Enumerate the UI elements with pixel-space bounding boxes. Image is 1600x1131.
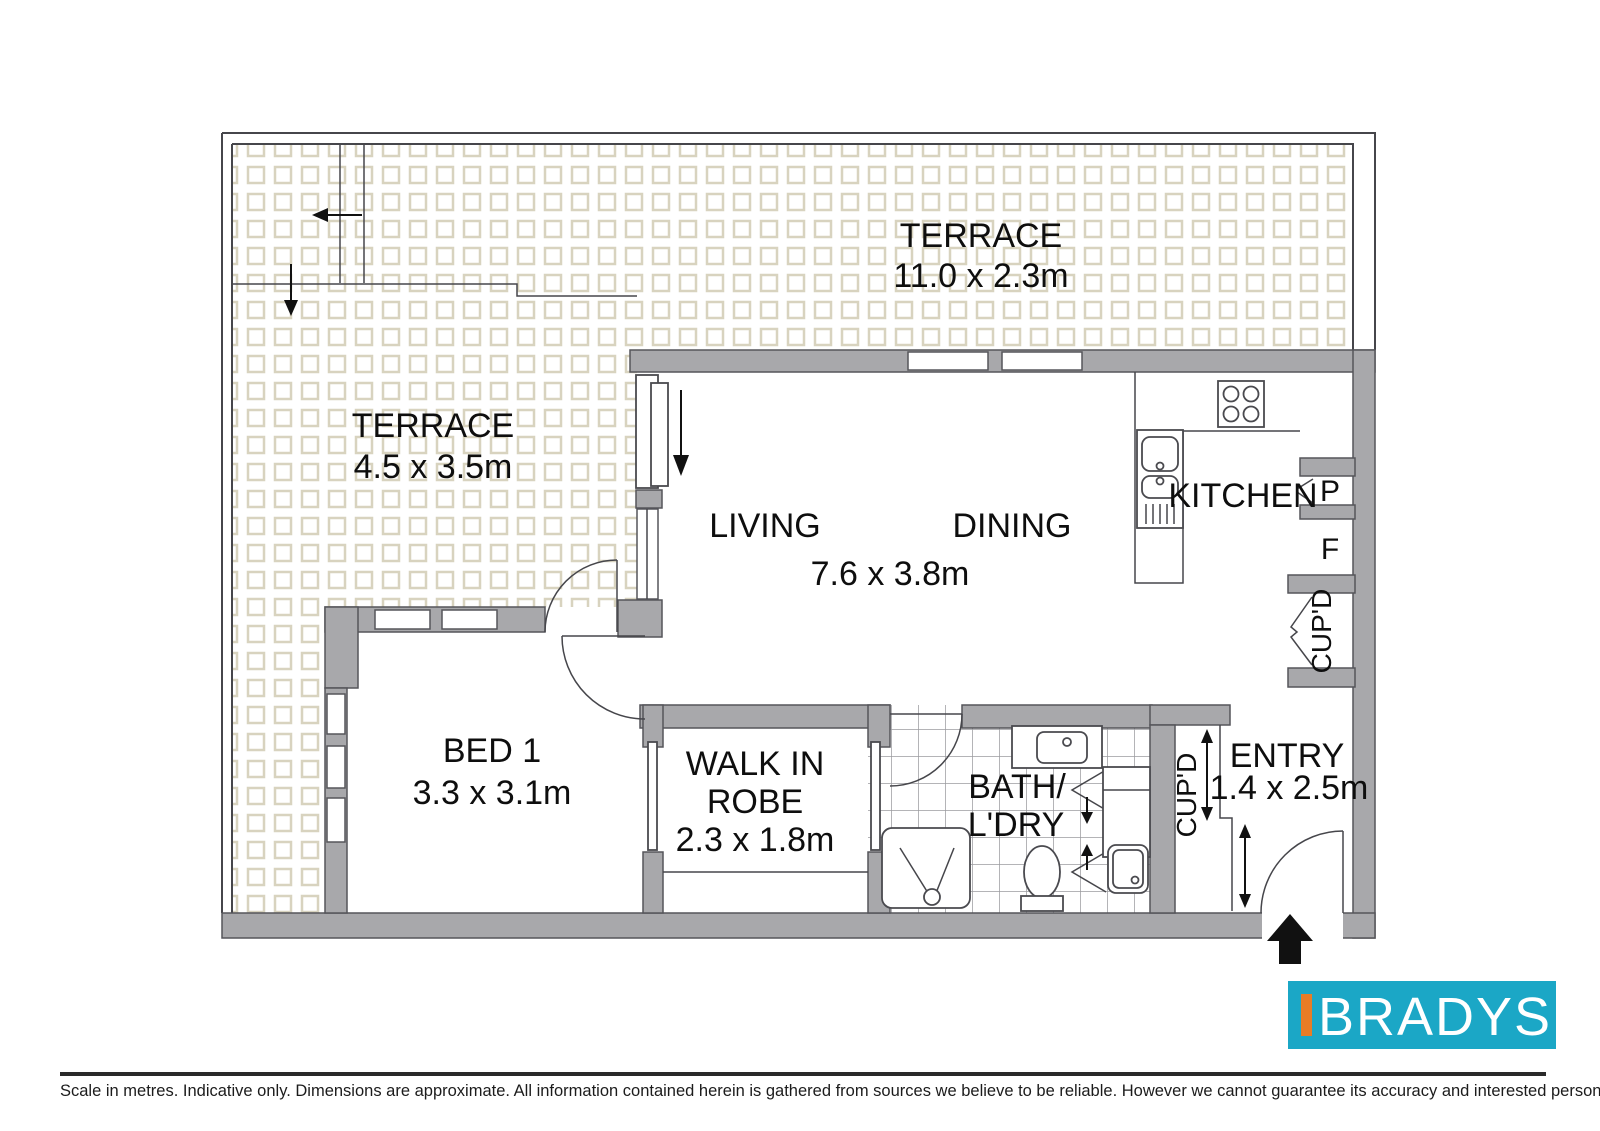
kitchen-cupboard-label: CUP'D xyxy=(1306,589,1337,674)
fridge-label: F xyxy=(1321,533,1339,566)
slider-direction-arrow-icon xyxy=(673,390,689,476)
footer: Scale in metres. Indicative only. Dimens… xyxy=(60,1072,1600,1100)
living-dining-dims: 7.6 x 3.8m xyxy=(811,555,970,593)
pantry-label: P xyxy=(1320,475,1340,508)
stove-icon xyxy=(1218,381,1264,427)
brand-logo: BRADYS xyxy=(1288,981,1556,1049)
bath-label-line2: L'DRY xyxy=(968,806,1065,844)
shower-icon xyxy=(882,828,970,908)
terrace-top-label: TERRACE xyxy=(900,217,1062,255)
entry-dims: 1.4 x 2.5m xyxy=(1210,769,1369,807)
entry-cupboard-label: CUP'D xyxy=(1171,753,1202,838)
terrace-left-dims: 4.5 x 3.5m xyxy=(354,448,513,486)
laundry-tub-icon xyxy=(1103,767,1150,893)
kitchen-label: KITCHEN xyxy=(1168,477,1317,515)
disclaimer-text: Scale in metres. Indicative only. Dimens… xyxy=(60,1082,1600,1100)
terrace-left-label: TERRACE xyxy=(352,407,514,445)
terrace-top-area xyxy=(232,144,1353,350)
robe-dims: 2.3 x 1.8m xyxy=(676,821,835,859)
floorplan-canvas: TERRACE 11.0 x 2.3m TERRACE 4.5 x 3.5m L… xyxy=(0,0,1600,1131)
terrace-top-dims: 11.0 x 2.3m xyxy=(893,257,1068,295)
living-label: LIVING xyxy=(709,507,820,545)
robe-label-line1: WALK IN xyxy=(686,745,825,783)
bed1-label: BED 1 xyxy=(443,732,541,770)
dining-label: DINING xyxy=(953,507,1072,545)
robe-label-line2: ROBE xyxy=(707,783,803,821)
toilet-icon xyxy=(1021,846,1063,911)
bed1-dims: 3.3 x 3.1m xyxy=(413,774,572,812)
floorplan-page: TERRACE 11.0 x 2.3m TERRACE 4.5 x 3.5m L… xyxy=(0,0,1600,1131)
logo-text: BRADYS xyxy=(1318,987,1552,1047)
logo-accent-bar xyxy=(1301,994,1312,1036)
footer-divider xyxy=(60,1072,1546,1076)
vanity-basin-icon xyxy=(1012,726,1102,768)
bath-label-line1: BATH/ xyxy=(968,768,1066,806)
